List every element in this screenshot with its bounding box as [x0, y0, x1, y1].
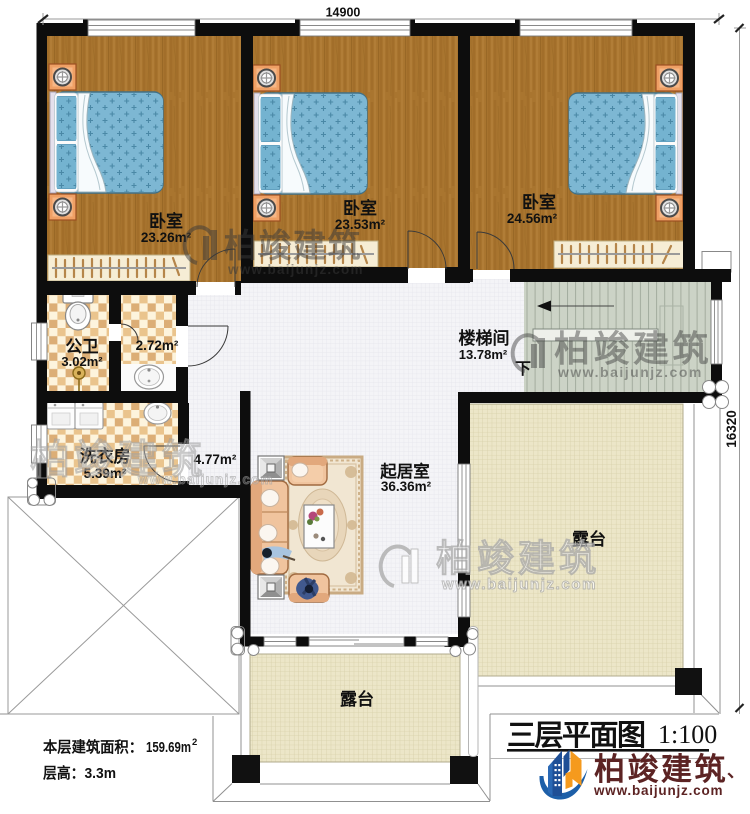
- svg-text:36.36m²: 36.36m²: [381, 479, 432, 494]
- svg-text:13.78m²: 13.78m²: [459, 347, 508, 362]
- svg-text:www.baijunjz.com: www.baijunjz.com: [227, 262, 364, 277]
- svg-text:柏竣建筑: 柏竣建筑: [554, 328, 712, 369]
- svg-text:层高：3.3m: 层高：3.3m: [43, 764, 116, 782]
- svg-text:16320: 16320: [724, 410, 739, 448]
- svg-text:3.02m²: 3.02m²: [61, 354, 103, 369]
- svg-text:www.baijunjz.com: www.baijunjz.com: [137, 472, 274, 487]
- svg-text:三层平面图: 三层平面图: [507, 720, 645, 752]
- svg-text:卧室: 卧室: [149, 211, 183, 231]
- svg-text:露台: 露台: [340, 689, 374, 709]
- svg-text:1:100: 1:100: [658, 720, 717, 749]
- svg-text:、: 、: [727, 761, 745, 781]
- svg-text:2: 2: [192, 737, 197, 748]
- svg-text:柏竣建筑: 柏竣建筑: [594, 752, 728, 787]
- svg-text:柏竣建筑: 柏竣建筑: [436, 537, 600, 579]
- svg-text:楼梯间: 楼梯间: [459, 328, 510, 348]
- svg-text:24.56m²: 24.56m²: [507, 211, 558, 226]
- svg-text:www.baijunjz.com: www.baijunjz.com: [557, 364, 703, 380]
- svg-text:159.69m: 159.69m: [146, 740, 191, 756]
- svg-text:卧室: 卧室: [522, 192, 556, 212]
- svg-text:2.72m²: 2.72m²: [136, 338, 179, 353]
- svg-text:14900: 14900: [326, 6, 361, 20]
- svg-text:起居室: 起居室: [379, 461, 430, 481]
- svg-text:本层建筑面积：: 本层建筑面积：: [43, 738, 143, 756]
- svg-text:卧室: 卧室: [343, 198, 377, 218]
- svg-text:www.baijunjz.com: www.baijunjz.com: [593, 783, 723, 798]
- svg-text:柏竣建筑: 柏竣建筑: [224, 227, 362, 264]
- svg-text:www.baijunjz.com: www.baijunjz.com: [441, 576, 597, 593]
